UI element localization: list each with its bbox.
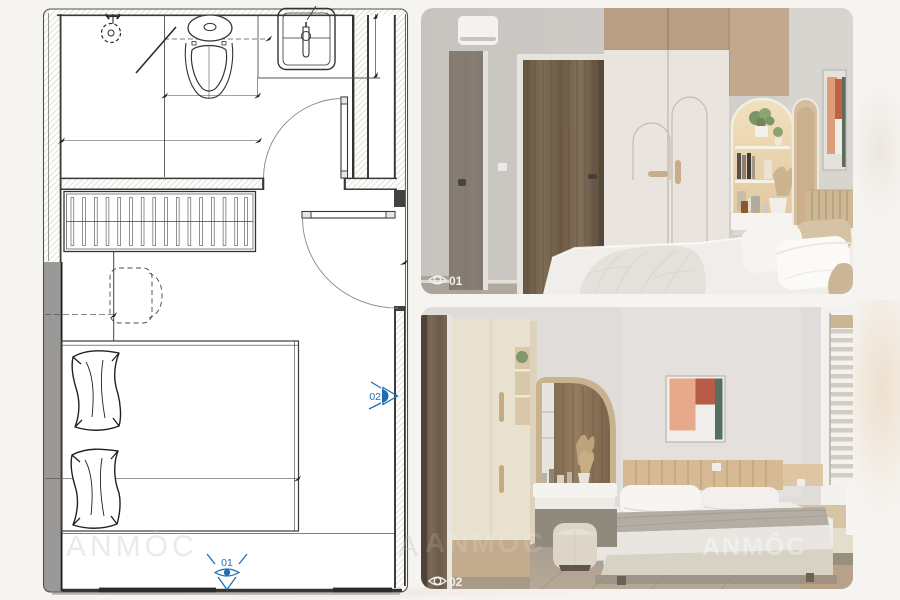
svg-text:02: 02 [449,575,463,589]
svg-text:02: 02 [369,391,381,403]
svg-text:ANMÔC: ANMÔC [702,531,806,561]
svg-text:01: 01 [449,274,463,288]
svg-text:AN: AN [398,530,420,563]
svg-text:ANMÔC: ANMÔC [425,526,546,558]
svg-text:01: 01 [221,557,233,569]
svg-text:ANMÔC: ANMÔC [66,529,198,563]
